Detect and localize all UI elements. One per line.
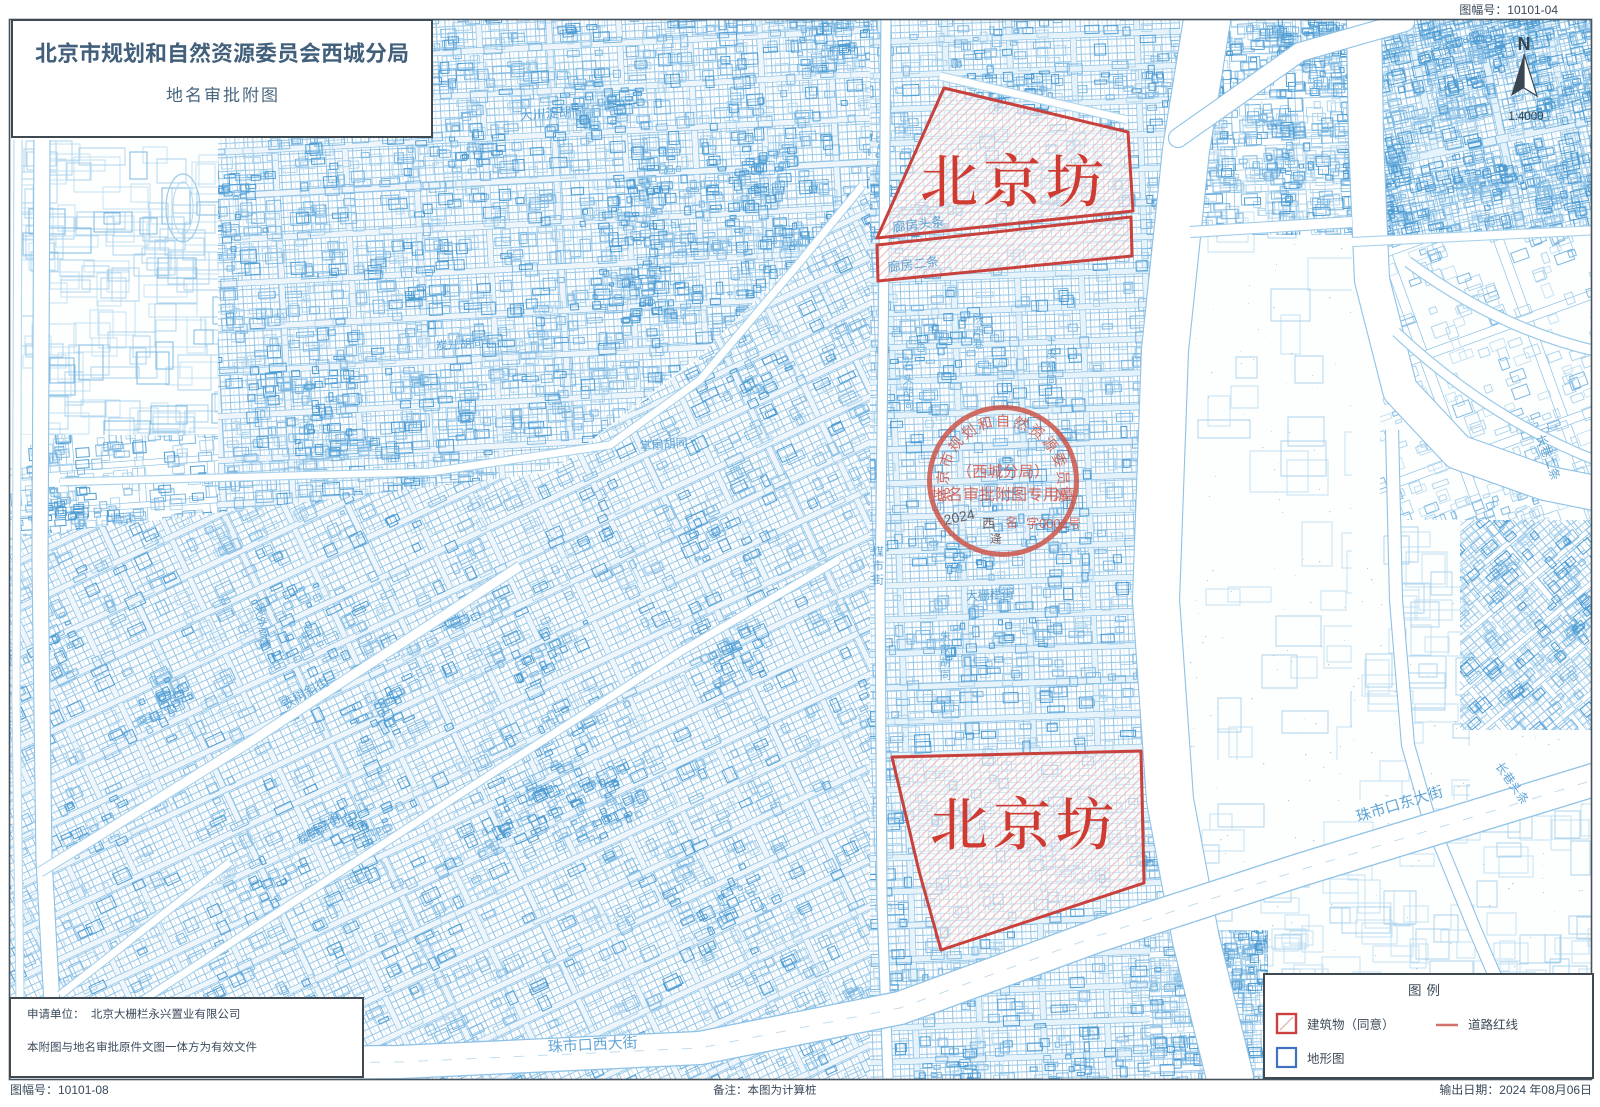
svg-text:08: 08 — [1541, 1083, 1555, 1097]
svg-text:1:4000: 1:4000 — [1508, 111, 1543, 123]
svg-text:10101-04: 10101-04 — [1507, 3, 1558, 17]
svg-text:06: 06 — [1567, 1083, 1581, 1097]
svg-text:2024: 2024 — [1499, 1083, 1526, 1097]
svg-text:N: N — [1518, 34, 1531, 54]
svg-text:10101-08: 10101-08 — [58, 1083, 109, 1097]
svg-text:0002: 0002 — [1039, 516, 1068, 531]
